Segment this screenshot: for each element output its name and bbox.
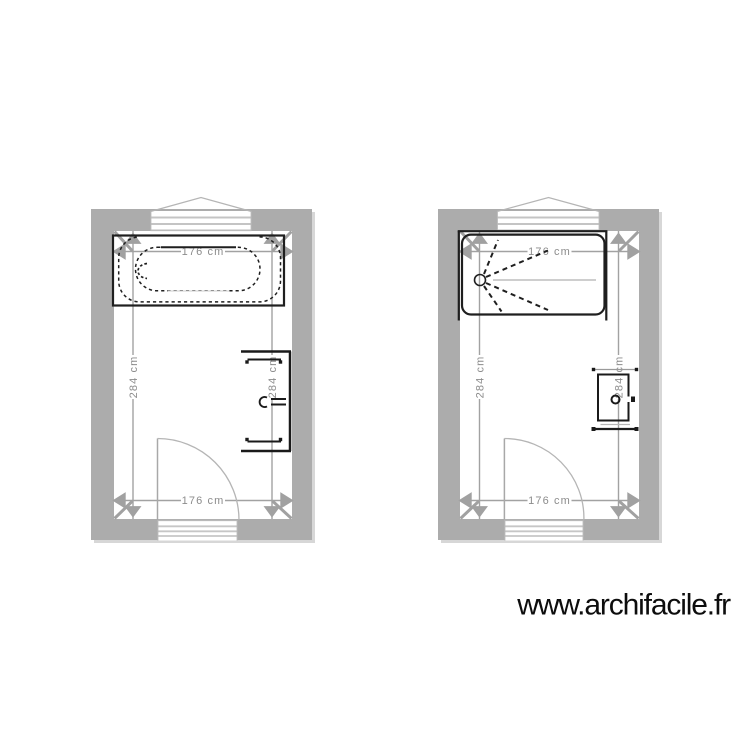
svg-text:176 cm: 176 cm (182, 495, 225, 507)
svg-text:284 cm: 284 cm (267, 356, 279, 399)
svg-text:176 cm: 176 cm (528, 495, 571, 507)
svg-text:284 cm: 284 cm (128, 356, 140, 399)
svg-text:176 cm: 176 cm (528, 246, 571, 258)
svg-text:www.archifacile.fr: www.archifacile.fr (516, 589, 731, 622)
svg-text:284 cm: 284 cm (474, 356, 486, 399)
svg-text:284 cm: 284 cm (613, 356, 625, 399)
